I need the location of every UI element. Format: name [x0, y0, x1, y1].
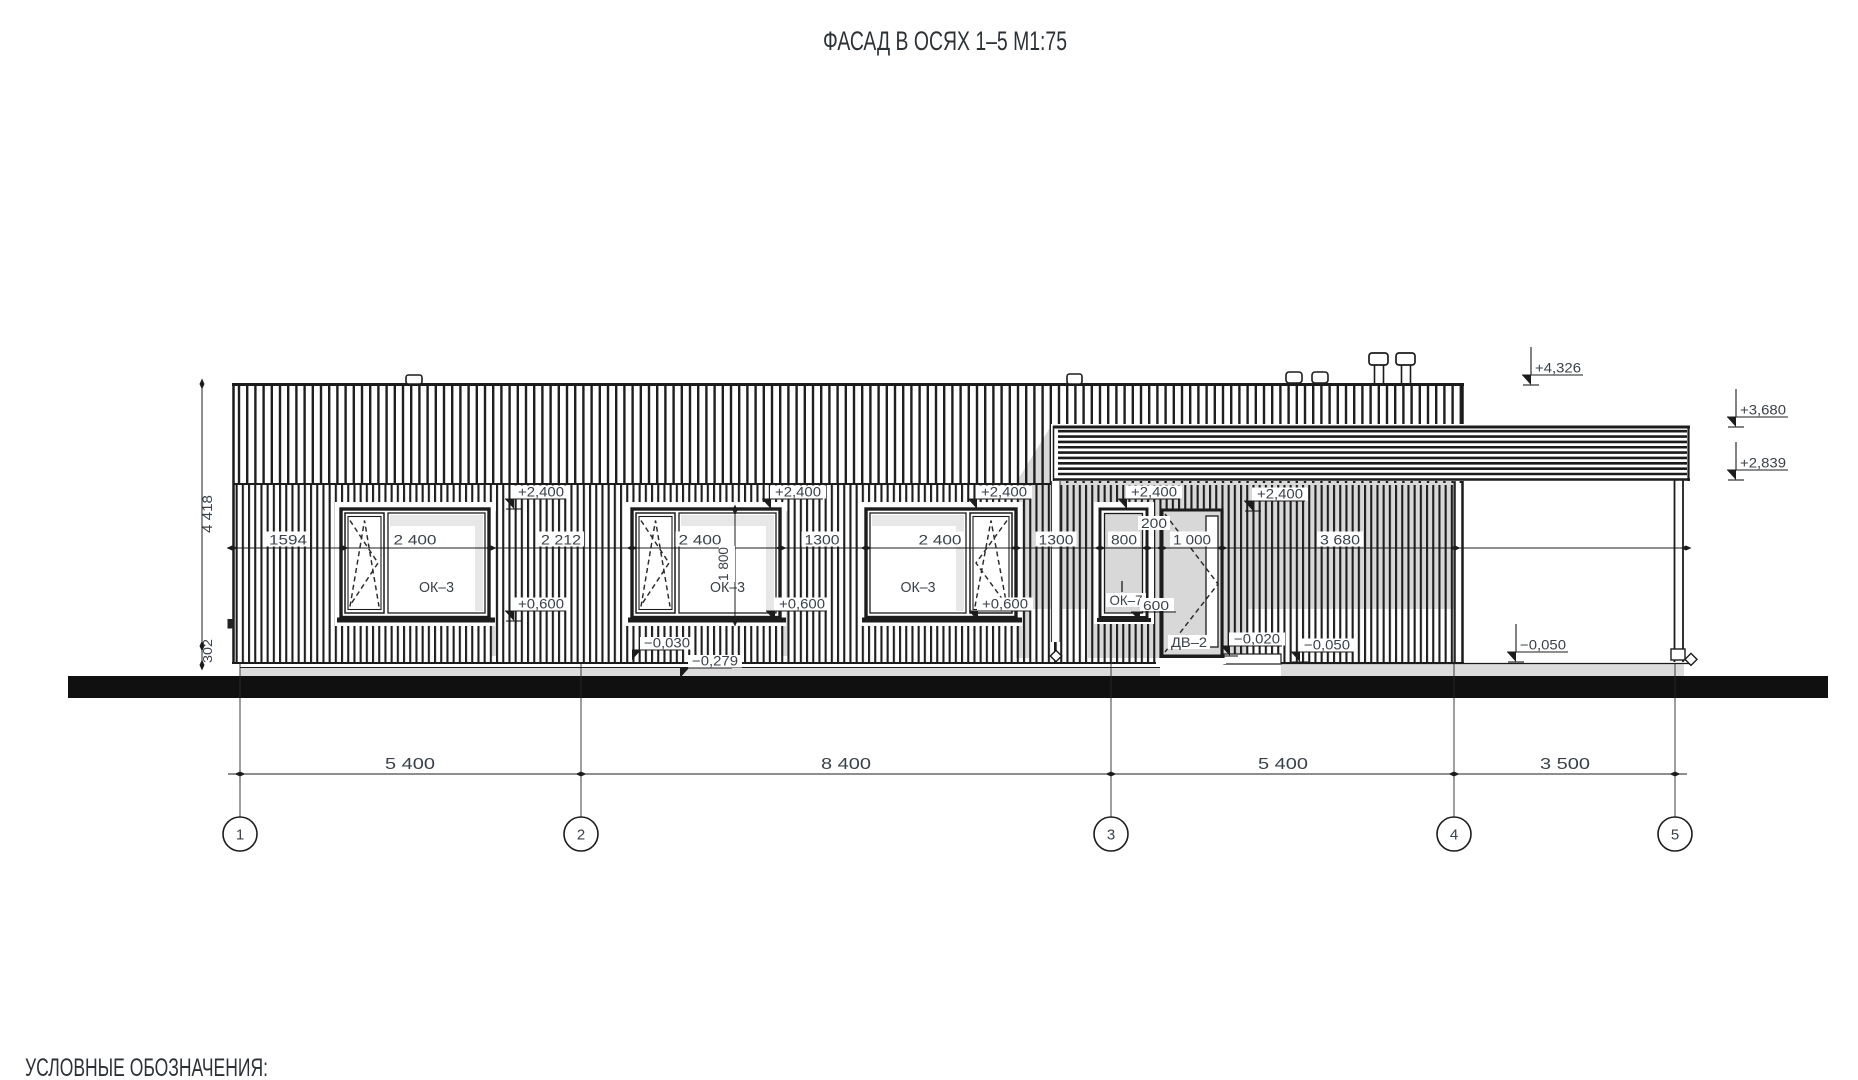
svg-text:ОК–7: ОК–7 [1110, 592, 1143, 608]
svg-text:+0,600: +0,600 [518, 597, 564, 612]
svg-text:ФАСАД В ОСЯХ 1–5 М1:75: ФАСАД В ОСЯХ 1–5 М1:75 [823, 26, 1067, 56]
svg-text:800: 800 [1111, 532, 1137, 548]
svg-text:+0,600: +0,600 [779, 597, 825, 612]
svg-text:+2,400: +2,400 [1131, 485, 1177, 500]
svg-text:УСЛОВНЫЕ ОБОЗНАЧЕНИЯ:: УСЛОВНЫЕ ОБОЗНАЧЕНИЯ: [25, 1054, 268, 1080]
svg-text:+0,600: +0,600 [982, 597, 1028, 612]
svg-text:1300: 1300 [1039, 532, 1074, 548]
svg-text:+3,680: +3,680 [1740, 403, 1786, 418]
svg-text:−0,279: −0,279 [692, 654, 738, 669]
svg-text:+2,400: +2,400 [981, 485, 1027, 500]
svg-text:+2,400: +2,400 [518, 485, 564, 500]
svg-text:200: 200 [1141, 515, 1167, 531]
svg-text:2 400: 2 400 [679, 532, 722, 548]
svg-text:ОК–3: ОК–3 [419, 579, 454, 596]
svg-text:302: 302 [200, 639, 215, 663]
svg-text:8 400: 8 400 [821, 756, 871, 773]
svg-text:ОК–3: ОК–3 [901, 579, 936, 596]
svg-text:+4,326: +4,326 [1535, 361, 1581, 376]
svg-text:+2,400: +2,400 [775, 485, 821, 500]
svg-text:−0,030: −0,030 [644, 636, 690, 651]
svg-text:5: 5 [1671, 827, 1679, 844]
svg-text:+2,400: +2,400 [1257, 487, 1303, 502]
svg-text:2 212: 2 212 [541, 532, 581, 548]
svg-text:2 400: 2 400 [919, 532, 962, 548]
svg-text:1 000: 1 000 [1173, 532, 1211, 548]
svg-text:+2,839: +2,839 [1740, 456, 1786, 471]
svg-text:5 400: 5 400 [1258, 756, 1308, 773]
svg-text:−0,050: −0,050 [1520, 638, 1566, 653]
svg-text:−0,050: −0,050 [1304, 638, 1350, 653]
svg-text:3 680: 3 680 [1320, 532, 1360, 548]
svg-text:1594: 1594 [269, 532, 307, 548]
svg-text:3 500: 3 500 [1540, 756, 1590, 773]
svg-text:−0,020: −0,020 [1234, 632, 1280, 647]
svg-text:4 418: 4 418 [199, 495, 215, 533]
svg-text:3: 3 [1107, 827, 1115, 844]
svg-text:ДВ–2: ДВ–2 [1171, 634, 1207, 650]
svg-text:2 400: 2 400 [394, 532, 437, 548]
svg-text:4: 4 [1450, 827, 1458, 844]
svg-text:2: 2 [577, 827, 585, 844]
svg-text:1 800: 1 800 [715, 547, 731, 581]
svg-text:5 400: 5 400 [385, 756, 435, 773]
svg-text:1300: 1300 [805, 532, 840, 548]
svg-text:600: 600 [1143, 598, 1169, 613]
svg-text:1: 1 [236, 827, 244, 844]
